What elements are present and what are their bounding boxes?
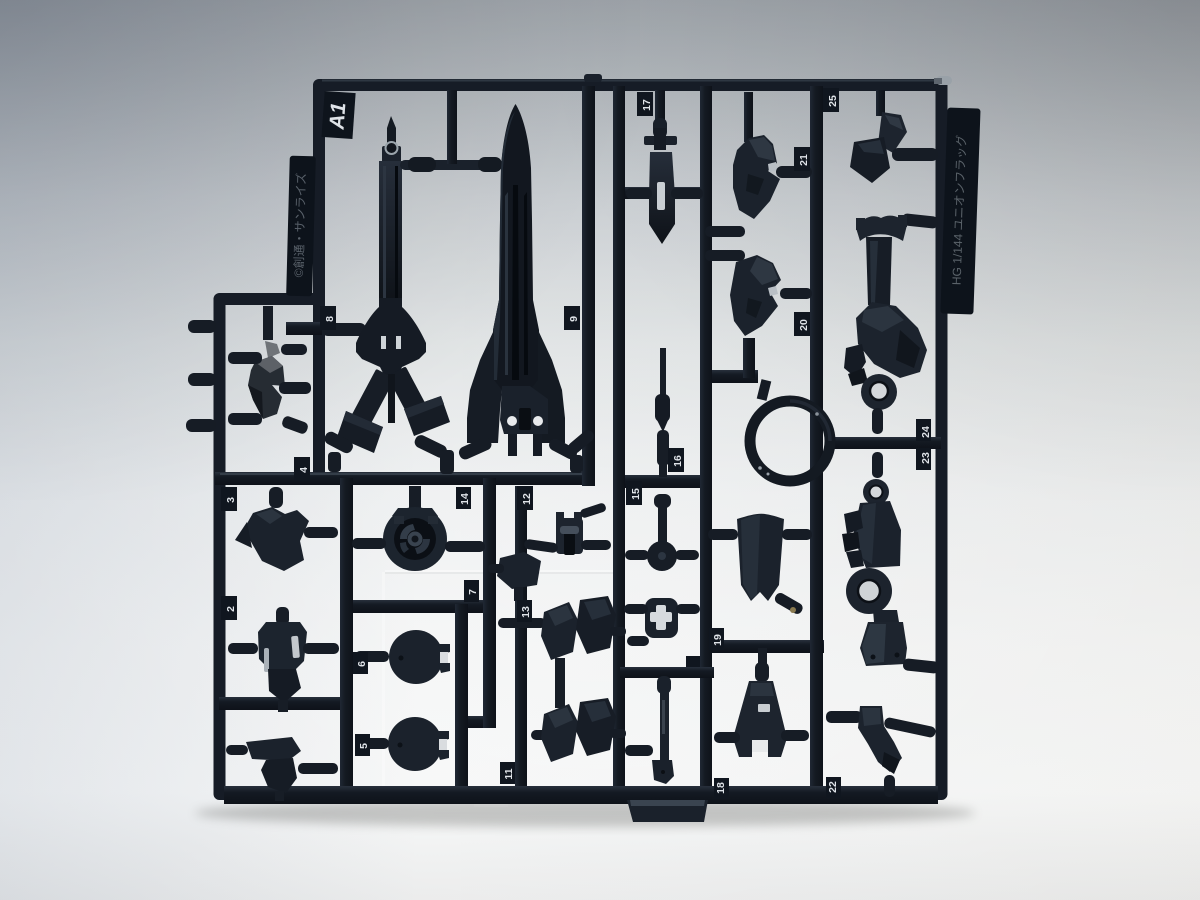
svg-text:22: 22 xyxy=(827,781,839,793)
svg-text:8: 8 xyxy=(324,316,336,322)
svg-text:17: 17 xyxy=(641,99,653,111)
svg-text:13: 13 xyxy=(520,606,532,618)
svg-text:4: 4 xyxy=(298,467,310,473)
svg-text:20: 20 xyxy=(798,319,810,331)
svg-text:25: 25 xyxy=(827,95,839,107)
svg-text:14: 14 xyxy=(459,493,471,505)
svg-text:12: 12 xyxy=(521,493,533,505)
svg-text:19: 19 xyxy=(712,634,724,646)
svg-text:16: 16 xyxy=(672,455,684,467)
svg-text:©創通・サンライズ: ©創通・サンライズ xyxy=(291,173,309,278)
svg-text:9: 9 xyxy=(568,316,580,322)
svg-text:7: 7 xyxy=(467,589,479,595)
svg-text:11: 11 xyxy=(503,768,515,779)
svg-text:6: 6 xyxy=(356,661,368,667)
svg-text:18: 18 xyxy=(715,782,727,794)
svg-text:5: 5 xyxy=(358,743,370,749)
svg-text:3: 3 xyxy=(225,497,237,503)
svg-text:2: 2 xyxy=(225,606,237,612)
svg-text:21: 21 xyxy=(798,154,810,166)
svg-text:23: 23 xyxy=(920,452,932,464)
svg-text:15: 15 xyxy=(630,488,642,500)
svg-text:24: 24 xyxy=(920,426,932,438)
svg-text:A1: A1 xyxy=(326,102,351,131)
